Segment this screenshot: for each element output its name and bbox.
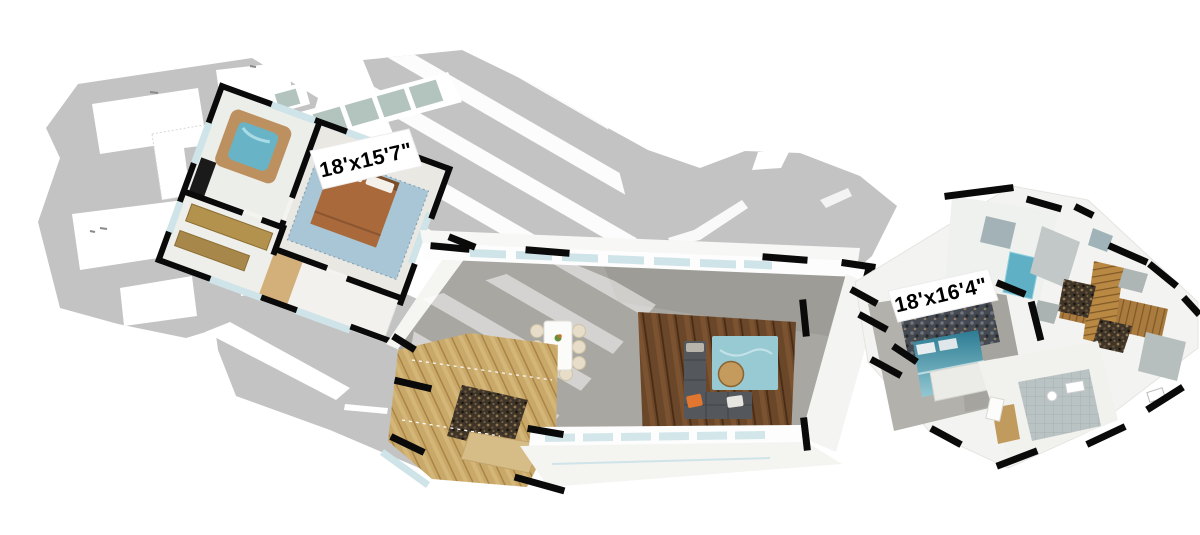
great-room — [382, 230, 882, 490]
sofa-pillow-white — [726, 395, 743, 408]
floorplan-3d-overview: 18'x15'7" 18'x16'4" — [0, 0, 1200, 535]
sofa-pillow-gray — [686, 343, 704, 352]
window-pane — [583, 433, 613, 442]
coffee-table[interactable] — [719, 362, 744, 387]
floorplan-canvas: 18'x15'7" 18'x16'4" — [0, 0, 1200, 535]
window-pane — [621, 433, 651, 442]
right-wing-suite — [854, 186, 1198, 468]
window-pane — [659, 432, 689, 441]
window-pane — [470, 249, 506, 259]
window-pane — [735, 431, 765, 440]
window-pane — [744, 260, 772, 270]
window-pane — [654, 257, 690, 267]
table-centerpiece-accent — [558, 334, 562, 338]
dining-chair — [573, 341, 586, 354]
dining-chair — [573, 325, 586, 338]
dining-chair — [531, 325, 544, 338]
sink-fixture[interactable] — [1047, 391, 1057, 401]
window-pane — [700, 259, 736, 269]
dining-chair — [573, 357, 586, 370]
window-pane — [608, 255, 644, 265]
window-pane — [697, 432, 727, 441]
